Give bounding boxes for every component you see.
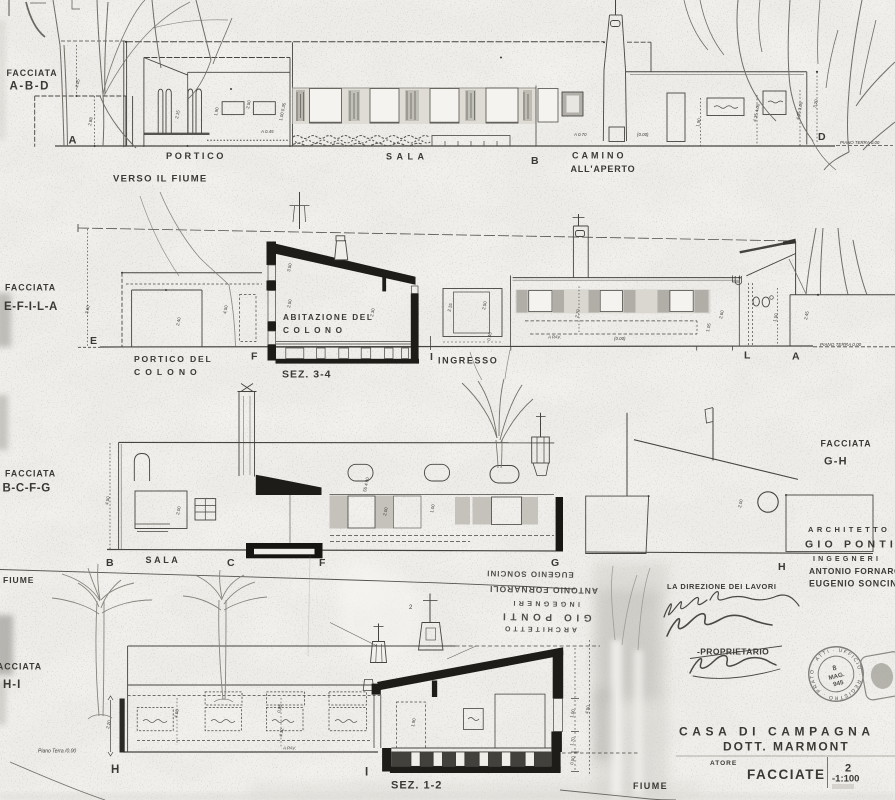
svg-text:FACCIATA: FACCIATA: [7, 68, 58, 78]
svg-text:-PROPRIETARIO: -PROPRIETARIO: [697, 647, 769, 657]
svg-text:H: H: [111, 764, 119, 776]
svg-text:A PAV.: A PAV.: [547, 335, 561, 340]
svg-text:A 0.70: A 0.70: [573, 132, 587, 137]
svg-text:CAMINO: CAMINO: [572, 151, 627, 161]
svg-text:FACCIATA: FACCIATA: [0, 662, 42, 672]
svg-text:B: B: [531, 155, 539, 167]
svg-text:I: I: [365, 767, 368, 779]
svg-text:FACCIATE: FACCIATE: [747, 767, 826, 782]
svg-text:A-B-D: A-B-D: [10, 81, 51, 93]
svg-text:DOTT. MARMONT: DOTT. MARMONT: [723, 740, 850, 754]
svg-text:-1:100: -1:100: [832, 774, 859, 785]
svg-text:CASA DI CAMPAGNA: CASA DI CAMPAGNA: [679, 725, 875, 739]
svg-text:PORTICO DEL: PORTICO DEL: [134, 354, 213, 364]
svg-text:FIUME: FIUME: [3, 575, 34, 585]
svg-text:ATORE: ATORE: [710, 760, 737, 767]
svg-text:I: I: [430, 351, 433, 363]
svg-text:D: D: [818, 131, 826, 143]
svg-text:A: A: [792, 351, 800, 363]
svg-text:VERSO IL FIUME: VERSO IL FIUME: [113, 174, 208, 185]
svg-text:B: B: [106, 557, 114, 569]
svg-text:SALA: SALA: [146, 555, 181, 565]
svg-text:ARCHITETTO: ARCHITETTO: [808, 525, 890, 534]
svg-text:(0.00): (0.00): [614, 336, 626, 341]
svg-text:H-I: H-I: [3, 679, 21, 691]
svg-text:ARCHITETTO: ARCHITETTO: [502, 624, 577, 632]
svg-text:INGEGNERI: INGEGNERI: [813, 556, 881, 563]
svg-text:ANTONIO FORNAROLI: ANTONIO FORNAROLI: [489, 584, 598, 596]
svg-text:ALL'APERTO: ALL'APERTO: [571, 164, 636, 174]
svg-text:INGEGNERI: INGEGNERI: [510, 599, 580, 607]
svg-text:FIUME: FIUME: [633, 781, 668, 791]
svg-text:GIO PONTI: GIO PONTI: [498, 610, 591, 623]
svg-text:E-F-I-L-A: E-F-I-L-A: [4, 301, 58, 313]
svg-text:PIANO TERRA 0.00: PIANO TERRA 0.00: [840, 140, 880, 145]
svg-text:PIANO TERRA 0.00: PIANO TERRA 0.00: [820, 342, 862, 347]
svg-text:G-H: G-H: [824, 456, 848, 468]
svg-text:SALA: SALA: [386, 152, 429, 162]
svg-text:COLONO: COLONO: [134, 367, 202, 377]
svg-text:ANTONIO FORNAROLI: ANTONIO FORNAROLI: [809, 566, 895, 576]
svg-text:A: A: [69, 135, 77, 147]
svg-text:A PAV.: A PAV.: [282, 746, 296, 751]
svg-text:G: G: [551, 557, 559, 569]
svg-text:PORTICO: PORTICO: [166, 151, 226, 161]
svg-text:Piano Terra /0.00: Piano Terra /0.00: [38, 749, 76, 755]
svg-text:GIO PONTI: GIO PONTI: [805, 539, 895, 551]
svg-text:B-C-F-G: B-C-F-G: [3, 483, 51, 495]
svg-text:INGRESSO: INGRESSO: [438, 356, 498, 366]
svg-text:FACCIATA: FACCIATA: [5, 469, 56, 479]
svg-text:E: E: [90, 335, 97, 347]
svg-text:COLONO: COLONO: [283, 326, 347, 335]
svg-text:L: L: [744, 350, 751, 362]
svg-text:FACCIATA: FACCIATA: [5, 283, 56, 293]
svg-text:(0.00): (0.00): [637, 132, 649, 137]
svg-text:LA DIREZIONE DEI LAVORI: LA DIREZIONE DEI LAVORI: [667, 582, 776, 591]
svg-text:FACCIATA: FACCIATA: [821, 439, 872, 449]
svg-text:EUGENIO SONCINI: EUGENIO SONCINI: [809, 579, 895, 589]
svg-text:C: C: [227, 557, 235, 569]
svg-text:F: F: [251, 351, 258, 363]
svg-text:SEZ. 3-4: SEZ. 3-4: [282, 369, 331, 381]
svg-text:A 0.45: A 0.45: [260, 129, 274, 134]
svg-text:ABITAZIONE DEL: ABITAZIONE DEL: [283, 313, 373, 322]
svg-text:F: F: [319, 557, 326, 569]
svg-text:SEZ. 1-2: SEZ. 1-2: [391, 780, 442, 792]
svg-text:H: H: [778, 561, 786, 573]
svg-text:EUGENIO SONCINI: EUGENIO SONCINI: [486, 569, 574, 580]
